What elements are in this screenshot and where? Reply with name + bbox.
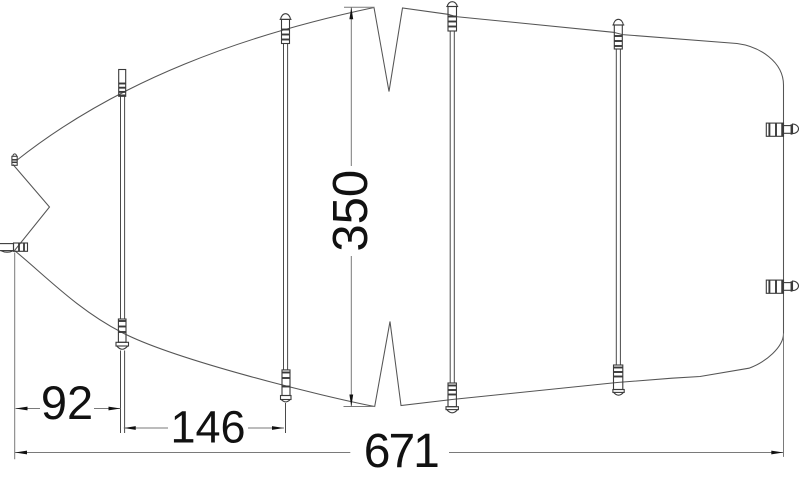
svg-text:350: 350 bbox=[324, 170, 378, 252]
svg-text:146: 146 bbox=[170, 402, 245, 453]
svg-text:671: 671 bbox=[364, 425, 440, 478]
svg-text:92: 92 bbox=[41, 376, 93, 429]
